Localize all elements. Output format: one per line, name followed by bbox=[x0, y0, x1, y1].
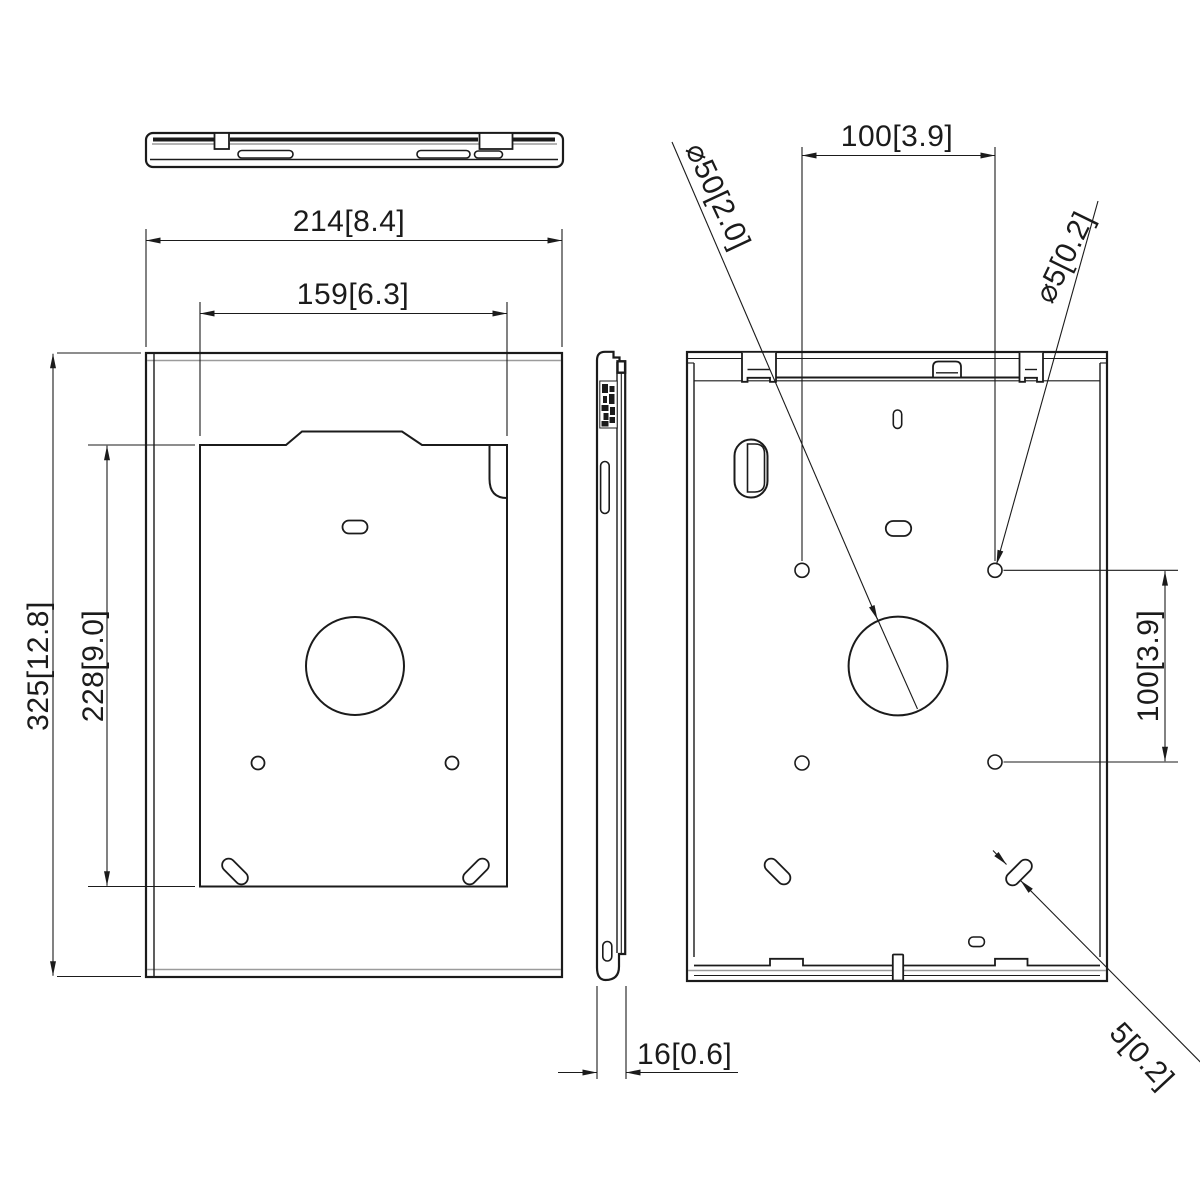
side-view bbox=[597, 352, 625, 980]
top-clip-right bbox=[480, 133, 513, 149]
dim-front-width-label: 214[8.4] bbox=[293, 205, 405, 238]
back-clip-left bbox=[742, 353, 776, 382]
drawing-page: 214[8.4] 159[6.3] 325[12.8] 228[9.0] bbox=[0, 0, 1200, 1200]
back-bottom-tab bbox=[893, 955, 903, 981]
dim-hole-pitch-vertical-label: 100[3.9] bbox=[1132, 610, 1165, 722]
back-clip-right bbox=[1020, 353, 1044, 382]
dim-front-width: 214[8.4] bbox=[146, 205, 562, 347]
dim-hole-pitch-horizontal-label: 100[3.9] bbox=[841, 120, 953, 153]
dim-large-hole-label: ⌀50[2.0] bbox=[679, 138, 757, 255]
top-view bbox=[146, 133, 563, 167]
top-clip-left bbox=[215, 133, 230, 149]
dim-window-width-label: 159[6.3] bbox=[297, 278, 409, 311]
front-outline bbox=[146, 353, 562, 977]
dim-window-height-label: 228[9.0] bbox=[77, 610, 110, 722]
dim-slot-width-label: 5[0.2] bbox=[1103, 1016, 1180, 1096]
dim-depth-label: 16[0.6] bbox=[637, 1038, 732, 1071]
dim-depth: 16[0.6] bbox=[558, 986, 738, 1079]
back-view bbox=[687, 352, 1107, 981]
dim-front-height-label: 325[12.8] bbox=[22, 601, 55, 731]
back-outline bbox=[687, 352, 1107, 981]
front-view bbox=[146, 353, 562, 977]
back-top-tab bbox=[933, 362, 961, 378]
technical-drawing: 214[8.4] 159[6.3] 325[12.8] 228[9.0] bbox=[0, 0, 1200, 1200]
side-top-latch bbox=[618, 361, 626, 372]
dim-small-hole-label: ⌀5[0.2] bbox=[1029, 207, 1101, 308]
side-label-sticker bbox=[600, 381, 617, 428]
